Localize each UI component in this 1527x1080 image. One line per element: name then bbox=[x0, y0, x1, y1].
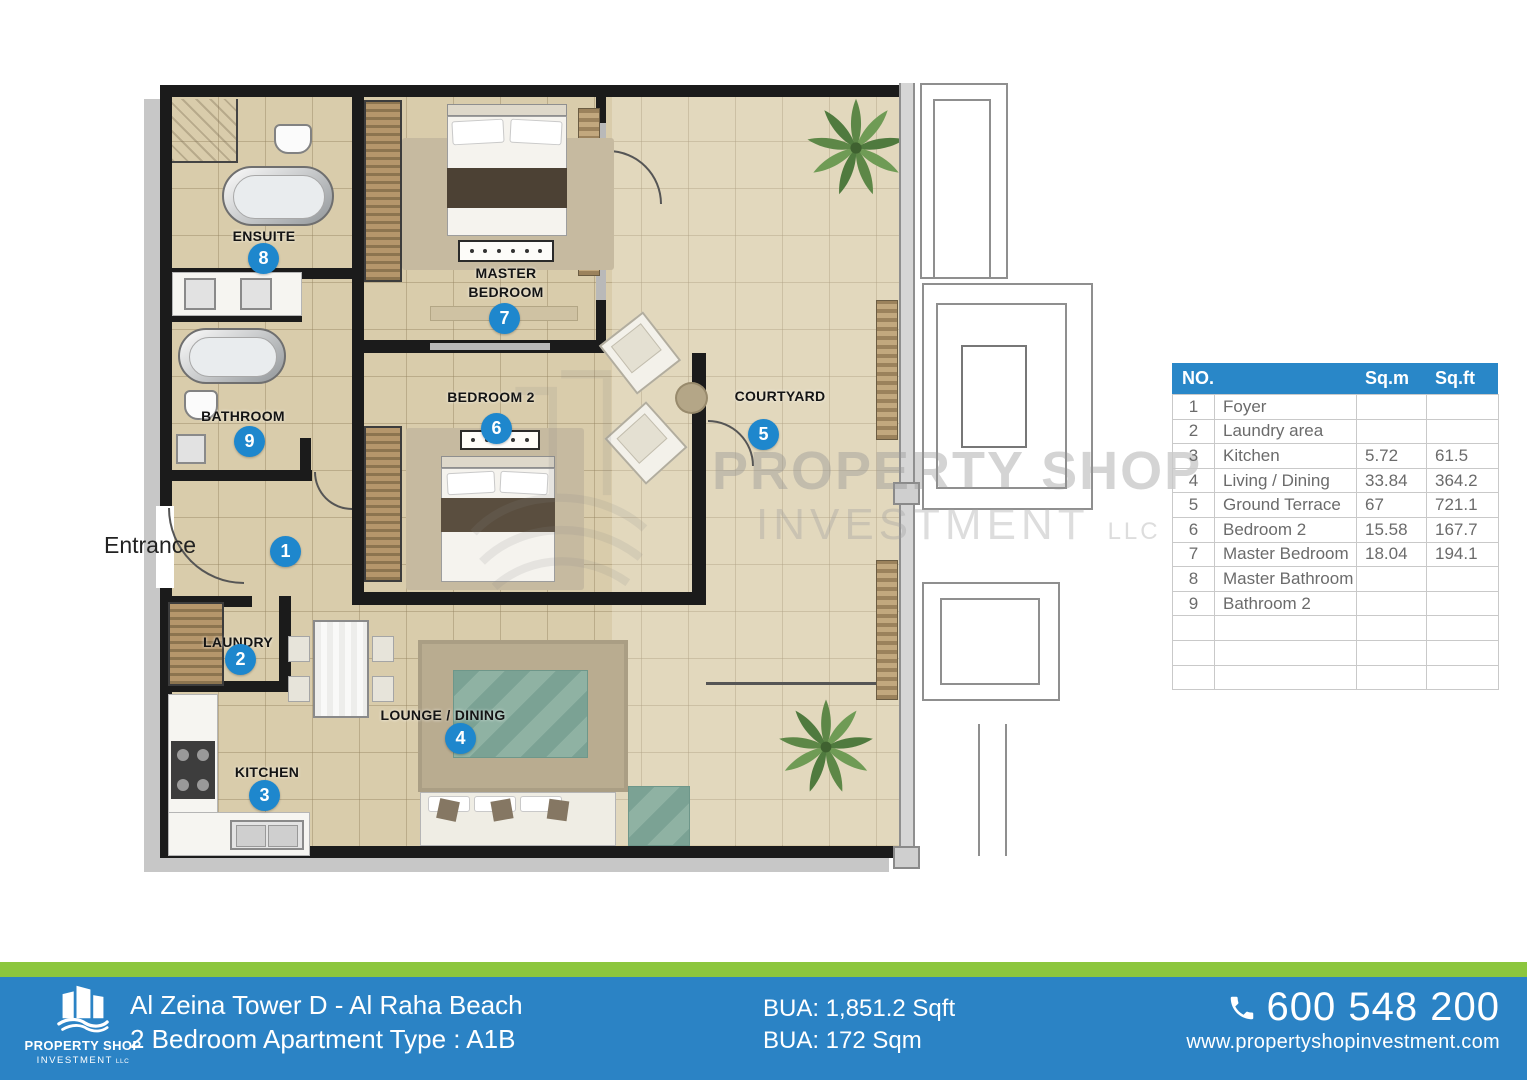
footer-bar: PROPERTY SHOP INVESTMENT LLC Al Zeina To… bbox=[0, 977, 1527, 1080]
cell-name: Bedroom 2 bbox=[1215, 517, 1357, 542]
table-row bbox=[1173, 665, 1499, 690]
watermark-investment: INVESTMENT bbox=[756, 500, 1090, 550]
label-courtyard: COURTYARD bbox=[720, 387, 840, 406]
marker-lounge: 4 bbox=[445, 723, 476, 754]
cell-no: 4 bbox=[1173, 468, 1215, 493]
cell-no: 8 bbox=[1173, 567, 1215, 592]
cell-sqft bbox=[1427, 640, 1499, 665]
mullion-connector bbox=[893, 846, 920, 869]
marker-kitchen: 3 bbox=[249, 780, 280, 811]
adjacent-unit-outline bbox=[940, 598, 1040, 685]
table-row: 1Foyer bbox=[1173, 395, 1499, 420]
watermark-logo-icon bbox=[452, 366, 662, 616]
shower bbox=[172, 99, 238, 163]
table-row: 6Bedroom 215.58167.7 bbox=[1173, 517, 1499, 542]
toilet bbox=[274, 124, 312, 154]
outdoor-bench bbox=[876, 560, 898, 700]
table-row: 7Master Bedroom18.04194.1 bbox=[1173, 542, 1499, 567]
table-row: 3Kitchen5.7261.5 bbox=[1173, 444, 1499, 469]
cell-name bbox=[1215, 640, 1357, 665]
header-no: NO. bbox=[1182, 368, 1214, 389]
throw-pillow bbox=[490, 798, 513, 821]
cell-sqft: 167.7 bbox=[1427, 517, 1499, 542]
label-kitchen: KITCHEN bbox=[207, 763, 327, 782]
adjacent-unit-outline bbox=[933, 99, 991, 279]
property-title: Al Zeina Tower D - Al Raha Beach 2 Bedro… bbox=[130, 988, 523, 1056]
cell-sqft: 721.1 bbox=[1427, 493, 1499, 518]
watermark-line1: PROPERTY SHOP bbox=[712, 440, 1202, 502]
sink-2 bbox=[176, 434, 206, 464]
table-row: 4Living / Dining33.84364.2 bbox=[1173, 468, 1499, 493]
palm-tree bbox=[800, 92, 912, 204]
logo-subtext: INVESTMENT LLC bbox=[37, 1055, 130, 1066]
label-master-bedroom: MASTER BEDROOM bbox=[441, 264, 571, 302]
bua-sqm: BUA: 172 Sqm bbox=[763, 1025, 955, 1057]
label-master-line1: MASTER bbox=[441, 264, 571, 283]
header-sqm: Sq.m bbox=[1365, 368, 1409, 389]
pillow bbox=[509, 119, 562, 146]
bathtub-2 bbox=[178, 328, 286, 384]
bua-info: BUA: 1,851.2 Sqft BUA: 172 Sqm bbox=[763, 993, 955, 1057]
bathtub-2-inner bbox=[189, 337, 277, 377]
cell-name: Master Bedroom bbox=[1215, 542, 1357, 567]
sliding-glass bbox=[430, 343, 550, 350]
cell-name: Ground Terrace bbox=[1215, 493, 1357, 518]
cell-sqft bbox=[1427, 395, 1499, 420]
cell-no: 6 bbox=[1173, 517, 1215, 542]
label-entrance: Entrance bbox=[104, 532, 196, 559]
cell-name: Bathroom 2 bbox=[1215, 591, 1357, 616]
marker-foyer: 1 bbox=[270, 536, 301, 567]
chair bbox=[372, 676, 394, 702]
wardrobe-bedroom2 bbox=[364, 426, 402, 582]
cell-sqft bbox=[1427, 665, 1499, 690]
buildings-icon bbox=[51, 983, 115, 1035]
table-row: 8Master Bathroom bbox=[1173, 567, 1499, 592]
table-row: 5Ground Terrace67721.1 bbox=[1173, 493, 1499, 518]
bed-headboard bbox=[447, 104, 567, 116]
cell-sqft: 364.2 bbox=[1427, 468, 1499, 493]
stone-feature bbox=[675, 382, 708, 414]
header-sqft: Sq.ft bbox=[1435, 368, 1475, 389]
wall bbox=[172, 470, 312, 481]
logo-llc: LLC bbox=[116, 1058, 129, 1065]
wall bbox=[352, 353, 364, 603]
cell-no: 5 bbox=[1173, 493, 1215, 518]
footer-green-stripe bbox=[0, 962, 1527, 977]
cell-sqm bbox=[1357, 567, 1427, 592]
logo-investment: INVESTMENT bbox=[37, 1055, 113, 1066]
title-line2: 2 Bedroom Apartment Type : A1B bbox=[130, 1022, 523, 1056]
throw-pillow bbox=[436, 798, 460, 822]
cell-name bbox=[1215, 665, 1357, 690]
area-table: 1Foyer2Laundry area3Kitchen5.7261.54Livi… bbox=[1172, 394, 1499, 690]
cell-name: Master Bathroom bbox=[1215, 567, 1357, 592]
table-row bbox=[1173, 640, 1499, 665]
table-row: 9Bathroom 2 bbox=[1173, 591, 1499, 616]
adjacent-unit-line bbox=[978, 724, 980, 856]
website: www.propertyshopinvestment.com bbox=[1186, 1031, 1500, 1054]
dining-table bbox=[313, 620, 369, 718]
marker-bathroom: 9 bbox=[234, 426, 265, 457]
area-table-body: 1Foyer2Laundry area3Kitchen5.7261.54Livi… bbox=[1173, 395, 1499, 690]
contact-info: 600 548 200 www.propertyshopinvestment.c… bbox=[1186, 985, 1500, 1054]
watermark-line2: INVESTMENT LLC bbox=[756, 500, 1161, 550]
label-bathroom: BATHROOM bbox=[183, 407, 303, 426]
cell-no: 7 bbox=[1173, 542, 1215, 567]
cell-name: Foyer bbox=[1215, 395, 1357, 420]
watermark-llc: LLC bbox=[1108, 518, 1161, 546]
cell-no: 3 bbox=[1173, 444, 1215, 469]
adjacent-unit-line bbox=[1005, 724, 1007, 856]
cell-sqft bbox=[1427, 567, 1499, 592]
cell-name: Kitchen bbox=[1215, 444, 1357, 469]
throw-pillow bbox=[547, 799, 570, 822]
cell-sqft bbox=[1427, 616, 1499, 641]
cell-name: Living / Dining bbox=[1215, 468, 1357, 493]
cell-sqm bbox=[1357, 665, 1427, 690]
phone-number: 600 548 200 bbox=[1267, 985, 1500, 1030]
cell-sqm bbox=[1357, 591, 1427, 616]
logo-text: PROPERTY SHOP bbox=[25, 1038, 142, 1053]
cell-sqm: 5.72 bbox=[1357, 444, 1427, 469]
cell-sqm bbox=[1357, 395, 1427, 420]
sink bbox=[240, 278, 272, 310]
cell-no: 1 bbox=[1173, 395, 1215, 420]
terrace-sill bbox=[706, 682, 896, 685]
cell-sqm: 15.58 bbox=[1357, 517, 1427, 542]
cell-no bbox=[1173, 665, 1215, 690]
bathtub-inner bbox=[233, 175, 325, 219]
cell-sqm bbox=[1357, 419, 1427, 444]
cell-sqft bbox=[1427, 591, 1499, 616]
cell-sqm: 18.04 bbox=[1357, 542, 1427, 567]
cell-name bbox=[1215, 616, 1357, 641]
outdoor-bench bbox=[876, 300, 898, 440]
wall bbox=[596, 300, 606, 340]
area-table-header: NO. Sq.m Sq.ft bbox=[1172, 363, 1498, 394]
table-row: 2Laundry area bbox=[1173, 419, 1499, 444]
adjacent-unit-outline bbox=[961, 345, 1027, 448]
cell-no bbox=[1173, 616, 1215, 641]
bathtub bbox=[222, 166, 334, 226]
cell-sqm: 67 bbox=[1357, 493, 1427, 518]
cell-no: 9 bbox=[1173, 591, 1215, 616]
cell-no bbox=[1173, 640, 1215, 665]
table-row bbox=[1173, 616, 1499, 641]
cell-sqm bbox=[1357, 616, 1427, 641]
label-master-line2: BEDROOM bbox=[441, 283, 571, 302]
sink bbox=[184, 278, 216, 310]
cell-sqft bbox=[1427, 419, 1499, 444]
flyer-page: ENSUITE MASTER BEDROOM BATHROOM BEDROOM … bbox=[0, 0, 1527, 1080]
chair bbox=[288, 676, 310, 702]
cell-no: 2 bbox=[1173, 419, 1215, 444]
title-line1: Al Zeina Tower D - Al Raha Beach bbox=[130, 988, 523, 1022]
marker-ensuite: 8 bbox=[248, 243, 279, 274]
bua-sqft: BUA: 1,851.2 Sqft bbox=[763, 993, 955, 1025]
cell-sqm: 33.84 bbox=[1357, 468, 1427, 493]
label-lounge-dining: LOUNGE / DINING bbox=[363, 706, 523, 725]
kitchen-sink bbox=[230, 820, 304, 850]
cell-sqm bbox=[1357, 640, 1427, 665]
marker-laundry: 2 bbox=[225, 644, 256, 675]
cell-name: Laundry area bbox=[1215, 419, 1357, 444]
chair bbox=[372, 636, 394, 662]
wardrobe-master bbox=[364, 100, 402, 282]
wall bbox=[352, 97, 364, 353]
palm-tree bbox=[772, 693, 880, 801]
cell-sqft: 194.1 bbox=[1427, 542, 1499, 567]
wall bbox=[300, 438, 311, 481]
marker-master: 7 bbox=[489, 303, 520, 334]
cell-sqft: 61.5 bbox=[1427, 444, 1499, 469]
dresser bbox=[458, 240, 554, 262]
phone-icon bbox=[1227, 993, 1257, 1023]
pillow bbox=[451, 119, 504, 146]
bed-throw bbox=[447, 168, 567, 208]
side-mat bbox=[628, 786, 690, 846]
